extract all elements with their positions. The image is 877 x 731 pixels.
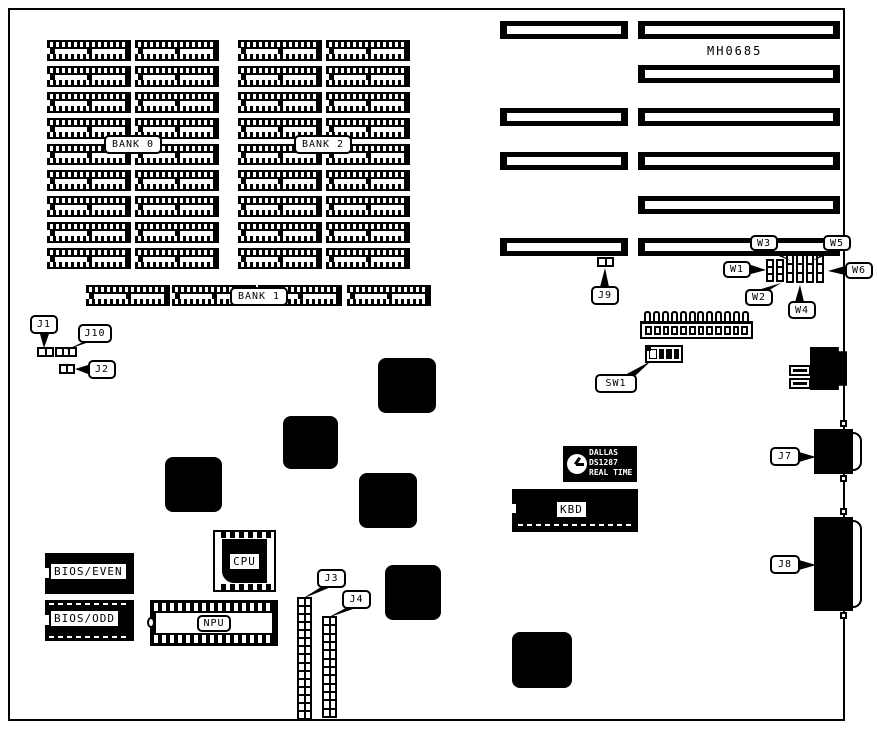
callout-j4: J4: [342, 590, 371, 609]
callout-w4: W4: [788, 301, 816, 319]
leader-j8: [799, 560, 816, 570]
callout-w6: W6: [845, 262, 873, 279]
leader-w4: [795, 285, 804, 302]
callout-j8: J8: [770, 555, 800, 574]
callout-j2: J2: [88, 360, 116, 379]
leader-j1: [40, 334, 49, 348]
callout-w5: W5: [823, 235, 851, 251]
callout-j10: J10: [78, 324, 112, 343]
leader-j7: [799, 452, 816, 462]
bank1-label: BANK 1: [230, 287, 288, 306]
bank0-label: BANK 0: [104, 135, 162, 154]
leader-w1: [751, 265, 766, 274]
motherboard-diagram: MH0685 BANK 0 BANK 2 BANK 1 J1 J10 J2 J3…: [0, 0, 877, 731]
leader-w3: [764, 250, 791, 261]
leader-j3: [302, 587, 331, 599]
callout-w2: W2: [745, 289, 773, 306]
leader-j2: [75, 365, 88, 374]
callout-j9: J9: [591, 286, 619, 305]
leader-j4: [327, 608, 356, 618]
leader-w5: [812, 250, 838, 261]
callout-j3: J3: [317, 569, 346, 588]
callout-w1: W1: [723, 261, 751, 278]
callout-j7: J7: [770, 447, 800, 466]
callout-sw1: SW1: [595, 374, 637, 393]
leader-j9: [600, 268, 609, 287]
callout-leaders: [0, 0, 877, 731]
bank2-label: BANK 2: [294, 135, 352, 154]
callout-j1: J1: [30, 315, 58, 334]
leader-w6: [828, 266, 845, 275]
callout-w3: W3: [750, 235, 778, 251]
